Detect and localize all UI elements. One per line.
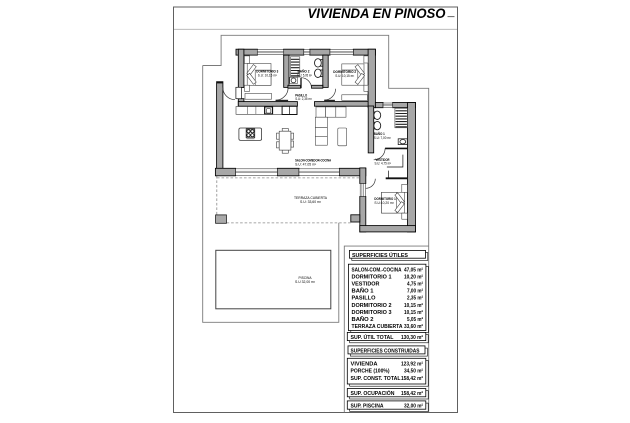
svg-text:TERRAZA CUBIERTA: TERRAZA CUBIERTA xyxy=(294,196,328,200)
svg-text:S.U: 2,35 m²: S.U: 2,35 m² xyxy=(295,97,312,101)
svg-text:SUPERFICIES ÚTILES: SUPERFICIES ÚTILES xyxy=(352,252,408,259)
svg-text:PASILLO: PASILLO xyxy=(352,296,377,302)
svg-text:DORMITORIO 3: DORMITORIO 3 xyxy=(352,310,392,316)
svg-text:DORMITORIO 2: DORMITORIO 2 xyxy=(352,303,392,309)
svg-text:158,42 m²: 158,42 m² xyxy=(401,390,423,397)
svg-text:VIVIENDA EN PINOSO: VIVIENDA EN PINOSO xyxy=(308,6,446,21)
svg-text:SUPERFICIES CONSTRUIDAS: SUPERFICIES CONSTRUIDAS xyxy=(351,348,420,354)
svg-text:158,42 m²: 158,42 m² xyxy=(401,375,423,382)
svg-text:S.U: 4,75 m²: S.U: 4,75 m² xyxy=(375,162,392,166)
svg-text:123,92 m²: 123,92 m² xyxy=(401,360,423,367)
svg-text:130,30 m²: 130,30 m² xyxy=(401,334,423,341)
svg-text:TERRAZA CUBIERTA: TERRAZA CUBIERTA xyxy=(352,324,403,330)
svg-text:34,50 m²: 34,50 m² xyxy=(404,368,423,375)
svg-text:S.U: 7,00 m²: S.U: 7,00 m² xyxy=(374,136,392,140)
svg-text:10,20 m²: 10,20 m² xyxy=(404,273,423,280)
svg-text:SALON-COM.-COCINA: SALON-COM.-COCINA xyxy=(352,267,402,273)
svg-text:S.U:10,20 m²: S.U:10,20 m² xyxy=(374,201,394,205)
svg-text:S.U: 10,15 m²: S.U: 10,15 m² xyxy=(258,74,278,78)
svg-text:32,00 m²: 32,00 m² xyxy=(404,402,423,409)
svg-text:5,05 m²: 5,05 m² xyxy=(407,316,423,323)
svg-text:DORMITORIO 1: DORMITORIO 1 xyxy=(352,274,392,280)
svg-text:4,75 m²: 4,75 m² xyxy=(407,281,423,288)
svg-text:BAÑO 1: BAÑO 1 xyxy=(352,288,374,295)
svg-text:2,35 m²: 2,35 m² xyxy=(407,295,423,302)
svg-text:S.U: 47,05 m²: S.U: 47,05 m² xyxy=(295,162,317,166)
svg-text:S.U 32,00 m²: S.U 32,00 m² xyxy=(295,280,316,284)
svg-text:7,00 m²: 7,00 m² xyxy=(407,288,423,295)
svg-text:SUP. CONST. TOTAL: SUP. CONST. TOTAL xyxy=(351,376,402,382)
svg-text:33,60 m²: 33,60 m² xyxy=(404,323,423,330)
svg-text:S.U: 33,60 m²: S.U: 33,60 m² xyxy=(300,200,322,204)
svg-text:47,05 m²: 47,05 m² xyxy=(404,266,423,273)
svg-text:PORCHE (100%): PORCHE (100%) xyxy=(351,369,390,375)
svg-text:VESTIDOR: VESTIDOR xyxy=(352,282,380,288)
svg-text:SUP. OCUPACIÓN: SUP. OCUPACIÓN xyxy=(351,389,395,397)
svg-text:10,15 m²: 10,15 m² xyxy=(404,309,423,316)
svg-text:VIVIENDA: VIVIENDA xyxy=(351,361,378,367)
svg-text:SUP. ÚTIL TOTAL: SUP. ÚTIL TOTAL xyxy=(351,334,395,341)
svg-text:S.U: 10,15 m²: S.U: 10,15 m² xyxy=(335,74,355,78)
svg-text:S.U: 5,05 m²: S.U: 5,05 m² xyxy=(297,73,313,77)
svg-text:10,15 m²: 10,15 m² xyxy=(404,302,423,309)
svg-text:BAÑO 2: BAÑO 2 xyxy=(352,316,374,323)
svg-text:SUP. PISCINA: SUP. PISCINA xyxy=(351,403,384,409)
